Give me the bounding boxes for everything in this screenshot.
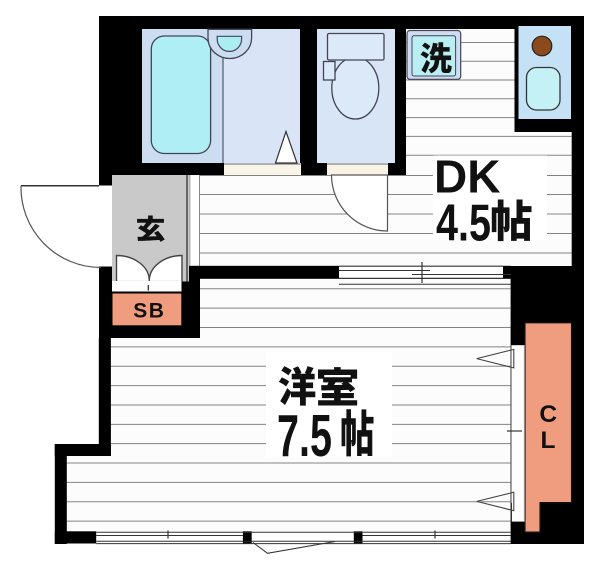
svg-text:SB: SB	[133, 300, 165, 323]
svg-text:7.5: 7.5	[277, 403, 332, 469]
svg-text:C: C	[539, 401, 557, 428]
svg-text:L: L	[541, 427, 556, 454]
svg-text:4.5: 4.5	[436, 193, 491, 252]
